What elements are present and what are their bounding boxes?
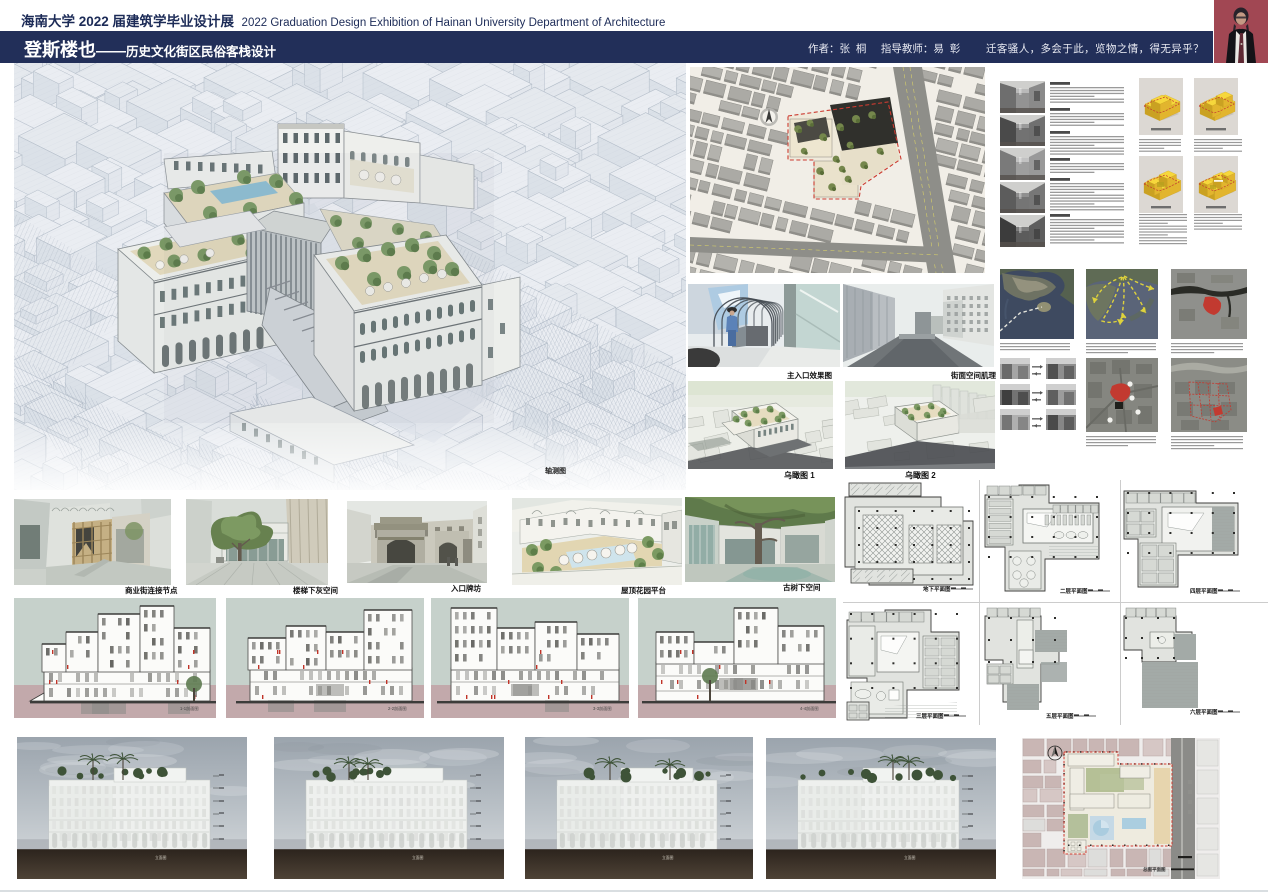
svg-text:1-1剖面图: 1-1剖面图 (180, 705, 199, 712)
svg-text:4-4剖面图: 4-4剖面图 (800, 705, 819, 712)
svg-text:立面图: 立面图 (412, 855, 424, 860)
svg-text:立面图: 立面图 (155, 855, 167, 860)
svg-text:3-3剖面图: 3-3剖面图 (593, 705, 612, 712)
svg-text:立面图: 立面图 (904, 855, 916, 860)
svg-text:立面图: 立面图 (662, 855, 674, 860)
svg-text:2-2剖面图: 2-2剖面图 (388, 705, 407, 712)
svg-text:总图平面图: 总图平面图 (1143, 866, 1166, 873)
svg-text:轴测图: 轴测图 (545, 466, 566, 475)
